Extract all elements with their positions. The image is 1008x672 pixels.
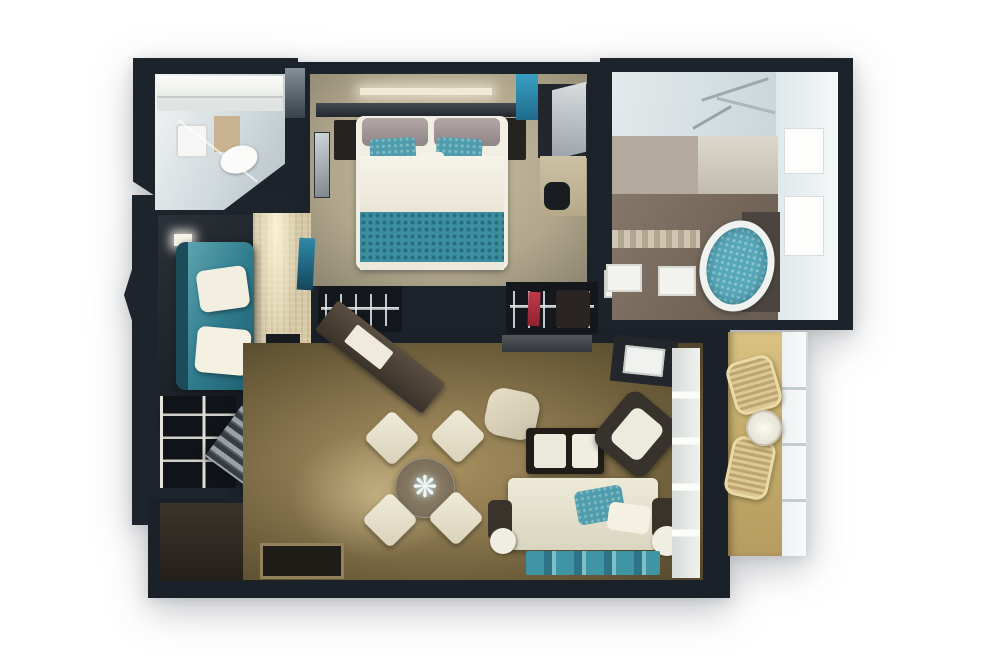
- floor-plan: ❋: [0, 0, 1008, 672]
- bed-teal-runner: [360, 212, 504, 262]
- balcony-table: [746, 410, 782, 446]
- page-background: ❋: [0, 0, 1008, 672]
- armchair-cushion: [608, 405, 665, 463]
- guest-bath-vanity: [157, 76, 283, 98]
- window-panel: [784, 196, 824, 256]
- wall-left-point: [124, 250, 138, 340]
- tv-screen: [623, 345, 666, 377]
- dark-garments: [556, 290, 590, 328]
- bed-duvet: [360, 156, 504, 212]
- teal-sofa-back: [176, 242, 188, 390]
- red-garment: [527, 292, 540, 326]
- bathroom-wall-band: [612, 136, 698, 194]
- coffee-table-tray: [534, 434, 566, 468]
- king-bed: [356, 112, 508, 270]
- lounge-wall-art: [297, 238, 316, 291]
- ceiling-light-cove: [360, 88, 492, 95]
- balcony-door-window: [672, 348, 700, 578]
- nightstand-left: [334, 120, 358, 160]
- guest-bath-shelf: [157, 98, 283, 111]
- bedroom-dresser-top: [552, 82, 586, 160]
- bedroom-desk-chair: [544, 182, 570, 210]
- bed-foot-strip: [360, 262, 504, 270]
- doormat: [260, 543, 344, 579]
- sofa-white-pillow: [606, 501, 651, 535]
- flower-centerpiece-icon: ❋: [412, 473, 437, 503]
- balcony-railing: [782, 332, 808, 556]
- bedroom-wall-art: [314, 132, 330, 198]
- living-room-sofa: [488, 476, 678, 558]
- teal-rug: [526, 551, 660, 575]
- glass-shower: [612, 72, 794, 136]
- bedroom-tv-accent: [516, 74, 538, 120]
- sofa-bolster-left: [490, 528, 516, 554]
- towel-rail: [612, 230, 700, 248]
- bath-mat-left: [606, 264, 642, 292]
- lounge-pillow-top: [195, 265, 250, 314]
- window-panel: [784, 128, 824, 174]
- media-cabinet: [502, 335, 592, 352]
- bath-mat-right: [658, 266, 696, 296]
- wall-pillar: [285, 68, 305, 118]
- bathroom-vanity-counter: [698, 136, 778, 194]
